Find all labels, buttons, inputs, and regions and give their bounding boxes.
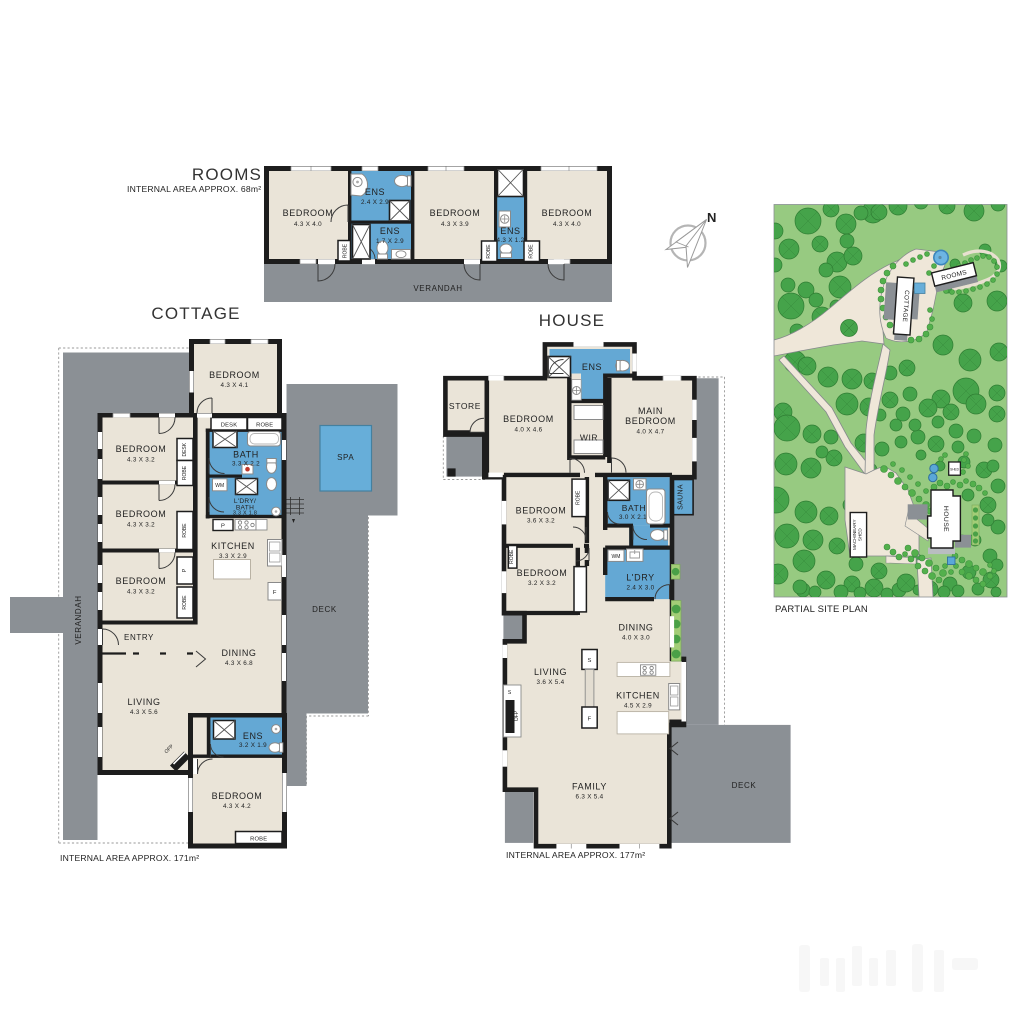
svg-text:3.6 X 5.4: 3.6 X 5.4 — [537, 679, 565, 686]
svg-text:BEDROOM: BEDROOM — [503, 414, 554, 424]
svg-text:3.2 X 3.2: 3.2 X 3.2 — [528, 580, 556, 587]
svg-text:DESK: DESK — [182, 442, 188, 456]
svg-text:4.3 X 4.2: 4.3 X 4.2 — [223, 803, 251, 810]
svg-text:ENS: ENS — [380, 226, 400, 236]
svg-text:ROBE: ROBE — [529, 244, 535, 259]
svg-text:MACHINEARY: MACHINEARY — [852, 519, 857, 550]
svg-text:S: S — [587, 658, 591, 664]
svg-text:4.0 X 4.7: 4.0 X 4.7 — [637, 429, 665, 436]
svg-text:ROBE: ROBE — [576, 490, 582, 505]
svg-text:SPA: SPA — [337, 453, 354, 462]
svg-text:BEDROOM: BEDROOM — [516, 506, 567, 516]
svg-text:BEDROOM: BEDROOM — [116, 444, 167, 454]
svg-text:VERANDAH: VERANDAH — [74, 595, 83, 644]
svg-text:BEDROOM: BEDROOM — [542, 208, 593, 218]
svg-text:MAIN: MAIN — [638, 406, 663, 416]
svg-text:SAUNA: SAUNA — [678, 484, 685, 510]
svg-text:3.3 X 1.8: 3.3 X 1.8 — [233, 511, 257, 517]
svg-text:F: F — [588, 717, 592, 723]
svg-text:P: P — [221, 524, 225, 530]
svg-text:FAMILY: FAMILY — [572, 782, 607, 792]
svg-text:3.3 X 2.9: 3.3 X 2.9 — [219, 553, 247, 560]
svg-text:COTTAGE: COTTAGE — [151, 304, 240, 323]
svg-text:ENTRY: ENTRY — [124, 633, 154, 642]
svg-text:4.3 X 4.1: 4.3 X 4.1 — [221, 382, 249, 389]
svg-text:HOUSE: HOUSE — [539, 311, 605, 330]
svg-text:KITCHEN: KITCHEN — [616, 691, 660, 701]
svg-text:BEDROOM: BEDROOM — [116, 576, 167, 586]
svg-text:4.0 X 4.6: 4.0 X 4.6 — [515, 427, 543, 434]
svg-text:STORE: STORE — [449, 401, 481, 411]
svg-text:3.3 X 2.2: 3.3 X 2.2 — [232, 461, 260, 468]
svg-text:4.3 X 6.8: 4.3 X 6.8 — [225, 660, 253, 667]
svg-text:ROBE: ROBE — [182, 465, 188, 480]
svg-text:2.4 X 2.9: 2.4 X 2.9 — [361, 199, 389, 206]
svg-text:ROBE: ROBE — [182, 595, 188, 610]
svg-text:WIR: WIR — [580, 433, 598, 443]
svg-text:N: N — [707, 210, 717, 225]
svg-text:3.2 X 1.9: 3.2 X 1.9 — [239, 742, 267, 749]
svg-text:ENS: ENS — [243, 731, 263, 741]
svg-text:BEDROOM: BEDROOM — [283, 208, 334, 218]
svg-text:SHED: SHED — [950, 468, 960, 472]
svg-text:L'DRY: L'DRY — [626, 573, 655, 583]
svg-text:DINING: DINING — [618, 623, 653, 633]
svg-text:4.5 X 2.9: 4.5 X 2.9 — [624, 703, 652, 710]
svg-text:ROBE: ROBE — [182, 523, 188, 538]
svg-text:F: F — [273, 590, 277, 596]
svg-text:4.3 X 3.2: 4.3 X 3.2 — [127, 457, 155, 464]
svg-text:DINING: DINING — [221, 648, 256, 658]
svg-text:ROBE: ROBE — [250, 837, 267, 843]
svg-text:WM: WM — [215, 483, 224, 489]
svg-text:1.7 X 2.9: 1.7 X 2.9 — [376, 238, 404, 245]
svg-text:ENS: ENS — [365, 187, 385, 197]
svg-text:4.3 X 4.0: 4.3 X 4.0 — [553, 221, 581, 228]
svg-text:ENS: ENS — [500, 226, 520, 236]
svg-text:ROBE: ROBE — [509, 549, 515, 564]
svg-text:INTERNAL AREA APPROX. 177m²: INTERNAL AREA APPROX. 177m² — [506, 850, 645, 860]
svg-text:4.3 X 4.0: 4.3 X 4.0 — [294, 221, 322, 228]
svg-text:LIVING: LIVING — [534, 667, 567, 677]
svg-text:ENS: ENS — [582, 362, 602, 372]
svg-text:ROBE: ROBE — [486, 244, 492, 259]
svg-text:VERANDAH: VERANDAH — [413, 284, 462, 293]
svg-text:BEDROOM: BEDROOM — [116, 509, 167, 519]
svg-text:4.0 X 3.0: 4.0 X 3.0 — [622, 635, 650, 642]
svg-text:HOUSE: HOUSE — [942, 506, 949, 532]
svg-text:BEDROOM: BEDROOM — [212, 791, 263, 801]
svg-text:PARTIAL SITE PLAN: PARTIAL SITE PLAN — [775, 604, 868, 615]
svg-text:4.3 X 3.2: 4.3 X 3.2 — [127, 522, 155, 529]
svg-text:OFP: OFP — [514, 710, 520, 721]
svg-text:3.6 X 3.2: 3.6 X 3.2 — [527, 518, 555, 525]
svg-text:DECK: DECK — [732, 781, 757, 790]
svg-text:INTERNAL AREA APPROX. 68m²: INTERNAL AREA APPROX. 68m² — [127, 184, 261, 194]
svg-text:BEDROOM: BEDROOM — [625, 416, 676, 426]
svg-text:6.3 X 5.4: 6.3 X 5.4 — [576, 794, 604, 801]
svg-text:2.4 X 3.0: 2.4 X 3.0 — [627, 585, 655, 592]
svg-text:4.3 X 3.9: 4.3 X 3.9 — [441, 221, 469, 228]
svg-text:3.0 X 2.1: 3.0 X 2.1 — [619, 514, 647, 521]
svg-text:ROOMS: ROOMS — [192, 165, 262, 184]
svg-text:INTERNAL AREA APPROX. 171m²: INTERNAL AREA APPROX. 171m² — [60, 853, 199, 863]
svg-text:KITCHEN: KITCHEN — [211, 541, 255, 551]
svg-text:ROBE: ROBE — [256, 423, 273, 429]
svg-text:DECK: DECK — [312, 605, 337, 614]
svg-text:BEDROOM: BEDROOM — [517, 568, 568, 578]
svg-text:BATH: BATH — [622, 503, 646, 513]
svg-text:LIVING: LIVING — [127, 697, 160, 707]
svg-text:BEDROOM: BEDROOM — [209, 370, 260, 380]
svg-text:4.3 X 1.2: 4.3 X 1.2 — [497, 237, 525, 244]
svg-text:WM: WM — [612, 554, 621, 560]
svg-text:ROBE: ROBE — [343, 243, 349, 258]
svg-text:SHED: SHED — [858, 528, 863, 541]
svg-text:BEDROOM: BEDROOM — [430, 208, 481, 218]
svg-text:4.3 X 3.2: 4.3 X 3.2 — [127, 589, 155, 596]
svg-text:4.3 X 5.6: 4.3 X 5.6 — [130, 709, 158, 716]
svg-text:DESK: DESK — [221, 423, 238, 429]
svg-text:BATH: BATH — [233, 450, 259, 460]
